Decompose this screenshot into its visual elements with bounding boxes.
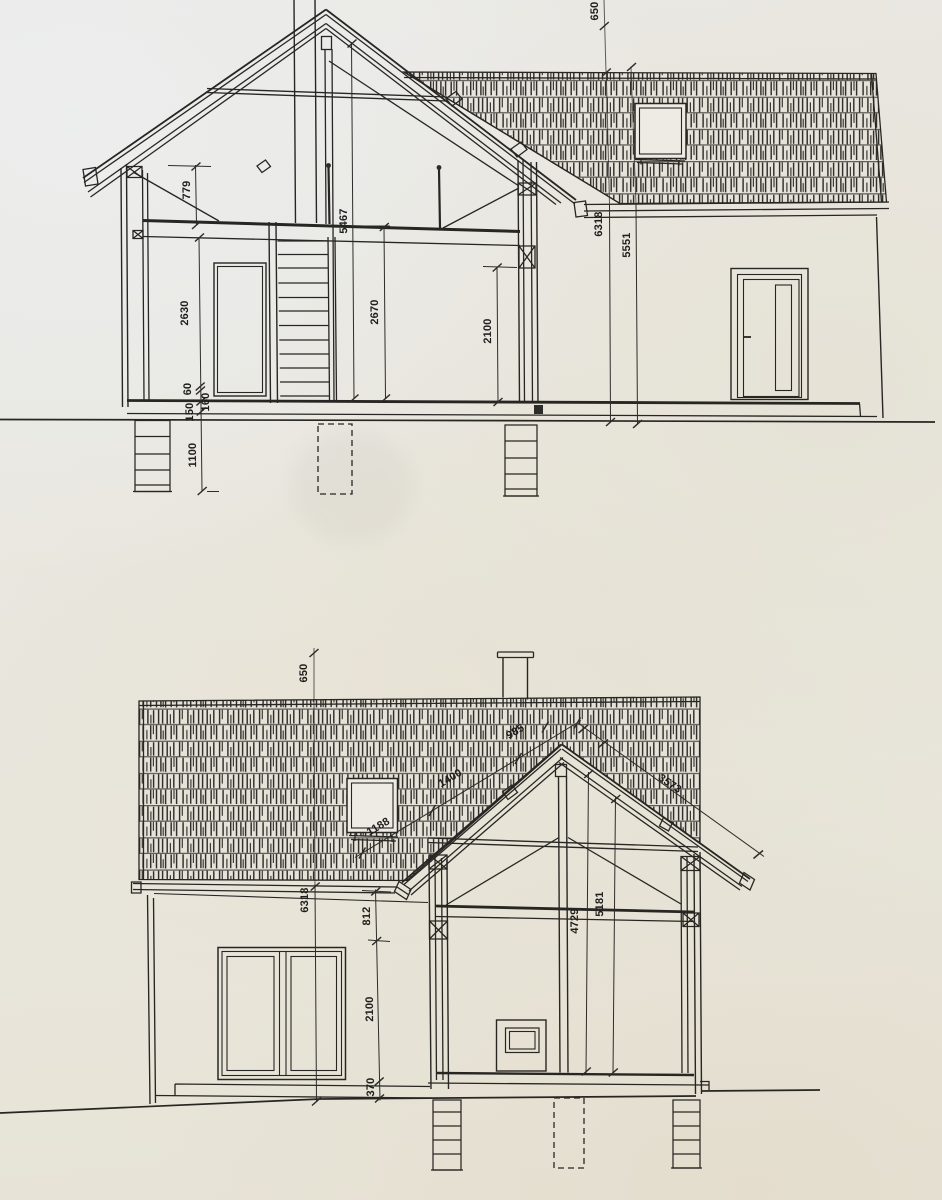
svg-text:160: 160	[200, 393, 212, 412]
svg-text:2100: 2100	[364, 996, 376, 1021]
svg-text:60: 60	[182, 383, 194, 396]
svg-text:5181: 5181	[594, 891, 606, 916]
svg-text:5467: 5467	[338, 208, 350, 233]
svg-text:150: 150	[184, 403, 196, 422]
svg-text:650: 650	[298, 664, 310, 683]
svg-text:5551: 5551	[621, 232, 633, 257]
svg-text:370: 370	[365, 1078, 377, 1097]
svg-text:779: 779	[181, 181, 193, 200]
svg-text:2670: 2670	[369, 299, 381, 324]
svg-text:2630: 2630	[179, 300, 191, 325]
svg-text:6318: 6318	[299, 887, 311, 912]
svg-text:4729: 4729	[569, 908, 581, 933]
svg-text:1100: 1100	[187, 443, 199, 468]
svg-text:2100: 2100	[482, 318, 494, 343]
svg-text:812: 812	[361, 907, 373, 926]
svg-text:650: 650	[589, 2, 601, 21]
svg-text:6318: 6318	[593, 211, 605, 236]
